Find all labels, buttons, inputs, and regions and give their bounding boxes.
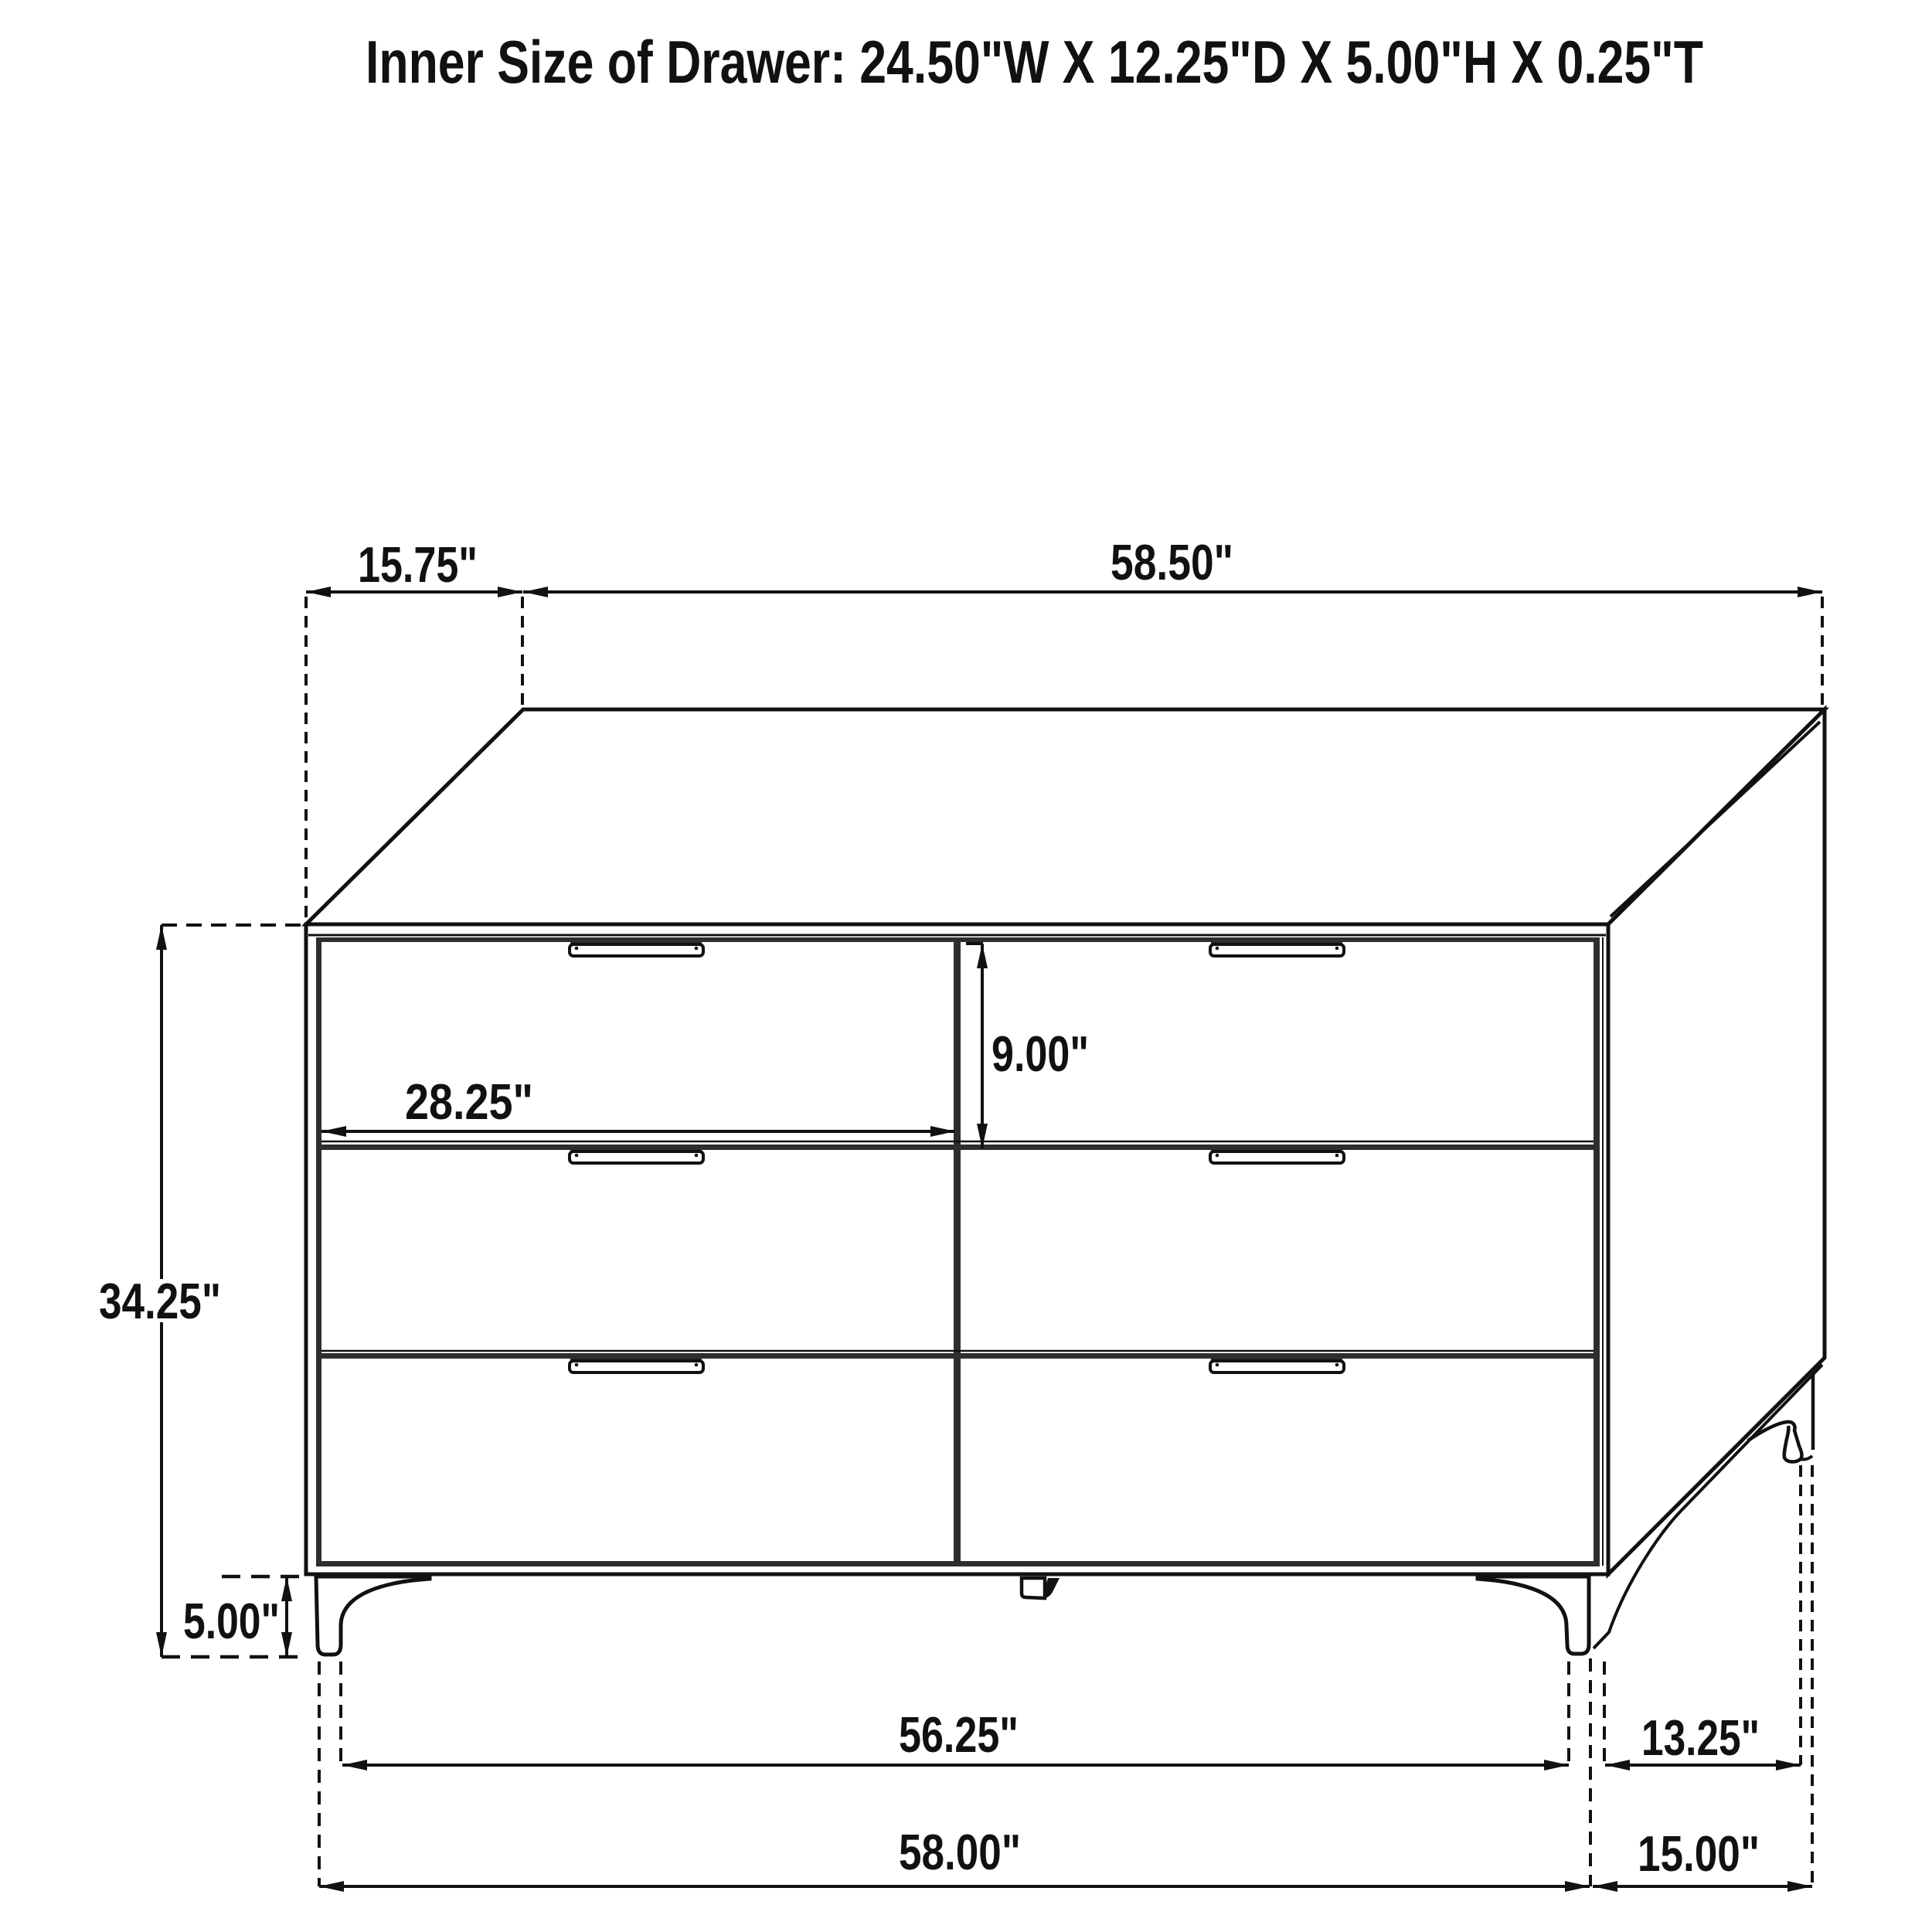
svg-text:58.00": 58.00" bbox=[899, 1824, 1021, 1880]
svg-text:15.75": 15.75" bbox=[358, 536, 478, 593]
svg-text:5.00": 5.00" bbox=[183, 1593, 280, 1649]
svg-text:13.25": 13.25" bbox=[1641, 1709, 1760, 1766]
svg-text:34.25": 34.25" bbox=[99, 1273, 221, 1329]
svg-text:58.50": 58.50" bbox=[1111, 534, 1233, 590]
svg-text:9.00": 9.00" bbox=[992, 1026, 1089, 1082]
svg-text:Inner Size of Drawer: 24.50"W: Inner Size of Drawer: 24.50"W X 12.25"D … bbox=[366, 28, 1703, 96]
svg-text:56.25": 56.25" bbox=[899, 1706, 1019, 1763]
svg-text:28.25": 28.25" bbox=[405, 1073, 533, 1130]
svg-text:15.00": 15.00" bbox=[1638, 1825, 1760, 1882]
